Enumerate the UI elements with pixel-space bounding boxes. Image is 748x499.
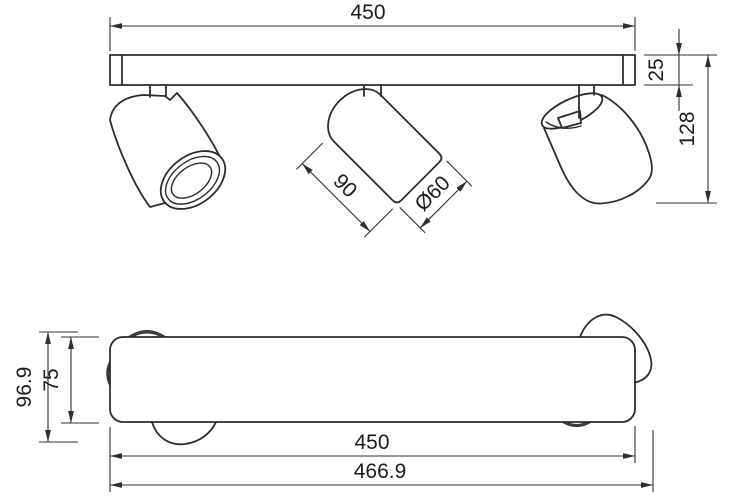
bottom-view: 96.9 75 450 466.9 — [13, 315, 653, 492]
dim-label-bar-depth: 75 — [40, 368, 63, 391]
dim-75-extension-lines — [61, 337, 99, 423]
dimension-bar-depth: 75 — [40, 337, 99, 423]
spot-left-top-edge — [128, 331, 166, 338]
dim-label-total-width: 466.9 — [354, 460, 407, 483]
spotlight-fixture-drawing: 90 Ø60 450 — [0, 0, 748, 499]
dim-label-top-width: 450 — [350, 1, 385, 24]
spot-head-left — [110, 85, 236, 221]
dim-label-spot-length: 90 — [329, 169, 362, 202]
spot-head-right — [537, 85, 652, 204]
fixture-body-bottom — [110, 337, 635, 422]
technical-dimension-drawing: 90 Ø60 450 — [0, 0, 748, 499]
dim-90-line — [302, 164, 370, 232]
dim-label-bottom-width: 450 — [354, 431, 389, 454]
dim-label-bar-height: 25 — [645, 58, 668, 81]
front-view: 90 Ø60 450 — [110, 1, 717, 265]
mounting-bar — [110, 55, 635, 85]
spot-left-bottom-arc — [152, 422, 216, 444]
dim-label-total-height: 128 — [676, 111, 699, 146]
dim-label-total-depth: 96.9 — [13, 367, 36, 408]
dimension-bar-height: 25 — [644, 29, 717, 111]
dimension-top-width: 450 — [110, 1, 635, 51]
spot-head-middle: 90 Ø60 — [284, 77, 472, 265]
